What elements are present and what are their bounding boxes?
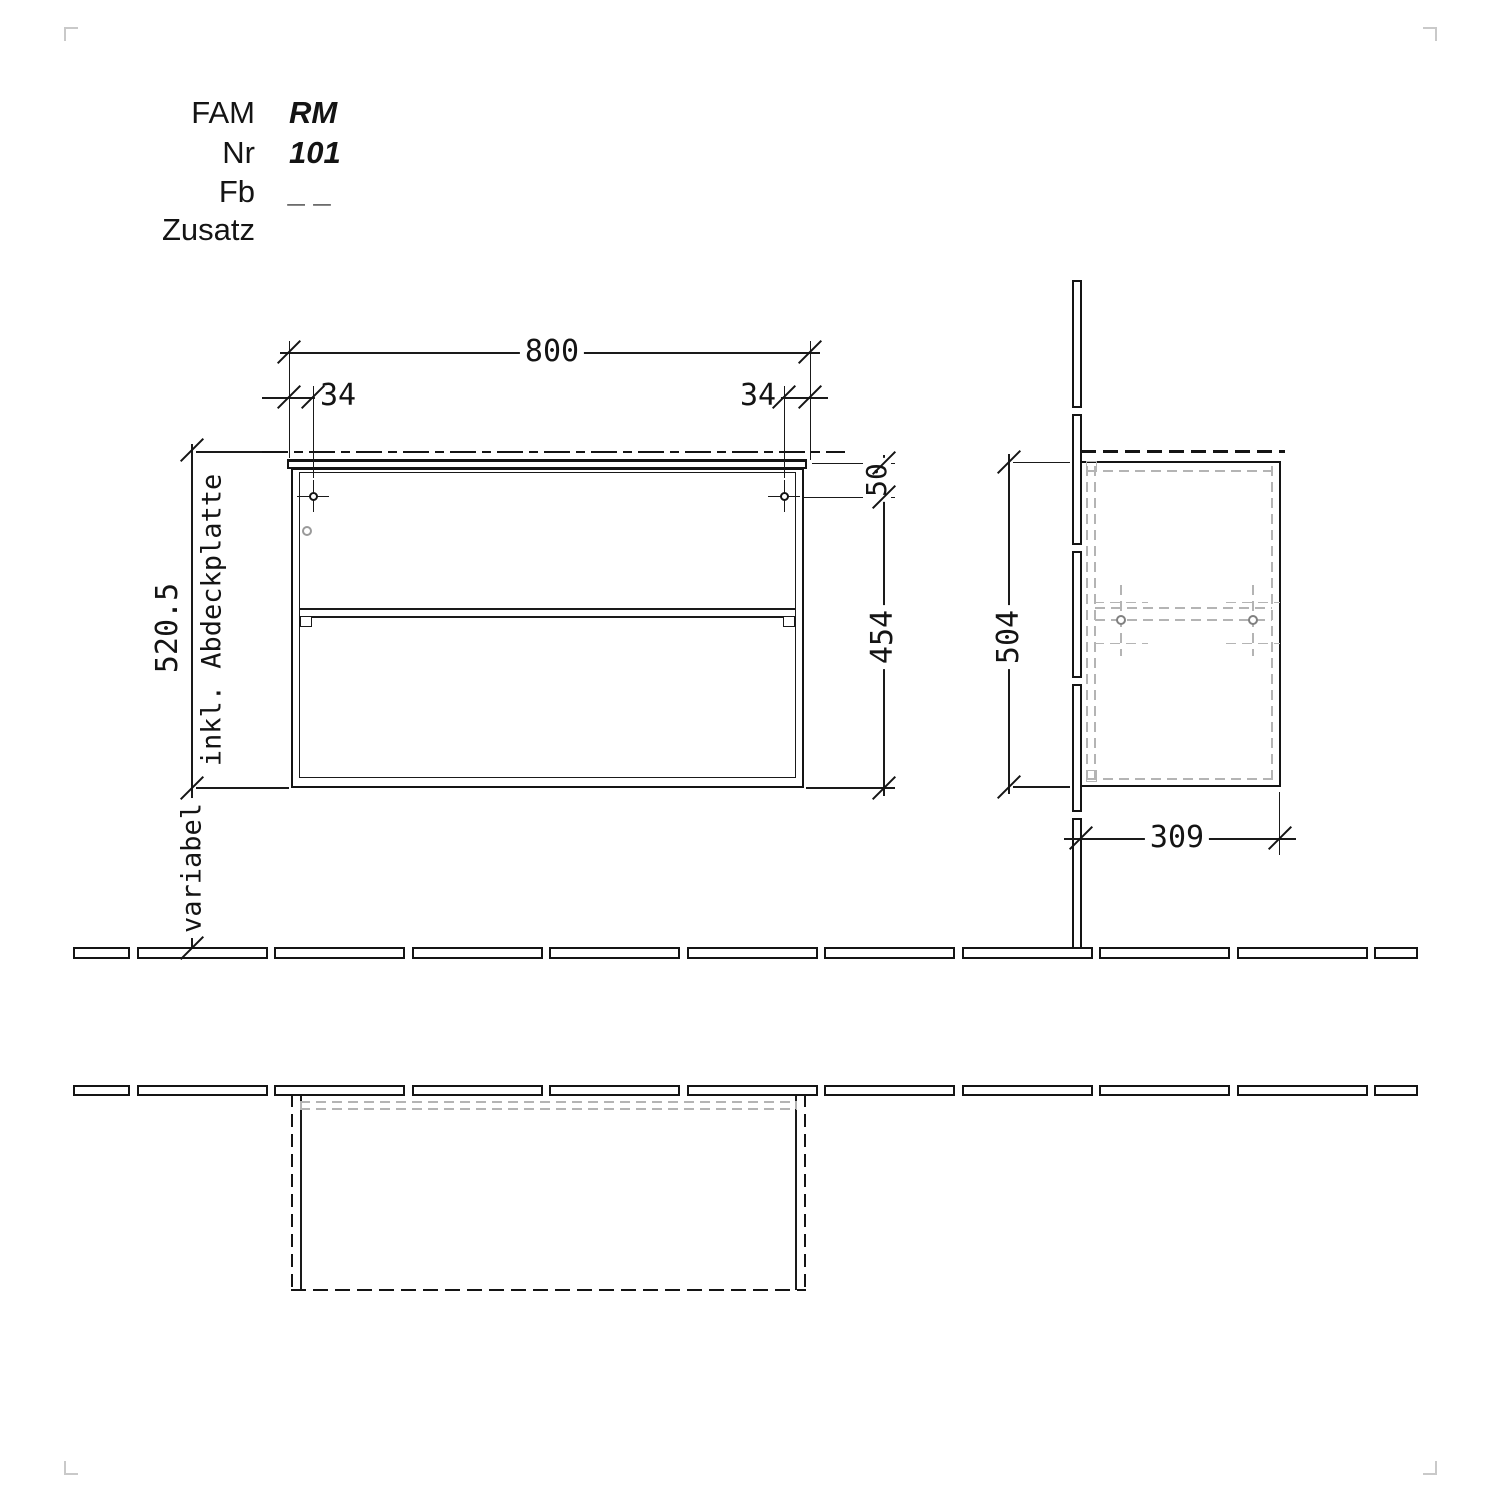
wall-strip-seg-3 [1072,551,1082,678]
wall-line-segment-row2 [1099,1085,1230,1096]
wall-line-segment-row1 [137,947,268,959]
wall-line-segment-row1 [549,947,680,959]
mount-left-cross-bottom [1094,643,1148,645]
top-right-inner-edge [795,1094,797,1290]
title-row-zusatz: Zusatz [130,210,450,250]
front-divider-bracket-left [300,616,312,627]
side-hidden-bottom-line [1087,778,1278,780]
screw-hole-left-icon [309,492,318,501]
title-row-fb: Fb _ _ [130,172,450,212]
dim-34L-ext [313,386,315,478]
dim-504-ext-top [1013,462,1070,464]
dim-label-width: 800 [520,337,584,367]
side-hidden-top-line [1087,470,1278,472]
top-hidden-cover-line-2 [300,1108,797,1110]
dim-label-body-height: 454 [868,605,898,669]
wall-line-segment-row1 [824,947,955,959]
front-divider-line-upper [300,608,795,610]
title-row-nr: Nr 101 [130,133,450,173]
title-label-nr: Nr [130,135,255,171]
wall-line-segment-row1 [1374,947,1418,959]
wall-line-segment-row2 [274,1085,405,1096]
front-wall-line-start [196,451,262,453]
side-hidden-corner-top [1086,461,1097,472]
hidden-hole-left-icon [302,526,312,536]
top-left-outer-edge [291,1094,293,1293]
mount-left-cross-top [1094,602,1148,604]
title-label-fam: FAM [130,95,255,131]
wall-strip-seg-2 [1072,414,1082,545]
crop-mark-bottom-left [64,1461,78,1475]
wall-line-segment-row2 [1374,1085,1418,1096]
dim-800-ext-left [289,341,291,458]
dim-800-ext-right [810,341,812,460]
title-row-fam: FAM RM [130,93,450,133]
crop-mark-bottom-right [1423,1461,1437,1475]
wall-line-segment-row1 [962,947,1093,959]
dim-label-side-height: 504 [994,605,1024,669]
dim-504-ext-bottom [1013,786,1070,788]
wall-line-segment-row2 [412,1085,543,1096]
wall-line-segment-row2 [687,1085,818,1096]
mount-screw-right-icon [1248,615,1258,625]
wall-line-segment-row1 [412,947,543,959]
top-hidden-cover-line-1 [300,1101,797,1103]
top-hidden-cover-cap-left [300,1101,302,1109]
side-hidden-front-line [1271,466,1273,781]
top-front-hidden-edge [291,1289,806,1291]
wall-line-segment-row2 [824,1085,955,1096]
wall-line-segment-row2 [549,1085,680,1096]
wall-line-segment-row2 [73,1085,130,1096]
title-value-fam: RM [289,95,349,131]
front-divider-line-lower [308,616,787,618]
side-top-hidden-edge [1081,450,1285,453]
title-label-fb: Fb [130,174,255,210]
top-hidden-cover-cap-right [795,1101,797,1109]
mount-right-cross-top [1226,602,1280,604]
dim-label-side-depth: 309 [1145,823,1209,853]
wall-strip-seg-1 [1072,280,1082,408]
side-bottom-edge [1081,785,1281,787]
front-wall-centerline [262,451,845,453]
mount-screw-left-icon [1116,615,1126,625]
screw-hole-right-icon [780,492,789,501]
wall-strip-seg-4 [1072,684,1082,812]
front-divider-bracket-right [783,616,795,627]
side-hidden-corner-bottom [1086,770,1097,782]
side-top-edge [1081,461,1281,463]
mount-right-cross-bottom [1226,643,1280,645]
wall-line-segment-row1 [1237,947,1368,959]
side-right-edge [1279,461,1281,787]
dim-520-ext-bottom [196,787,289,789]
top-right-outer-edge [804,1094,806,1293]
dim-label-height-below: variabel [179,798,206,938]
crop-mark-top-left [64,27,78,41]
technical-drawing-canvas: FAM RM Nr 101 Fb _ _ Zusatz [0,0,1499,1500]
dim-34R-ext [784,386,786,478]
front-body-inner-outline [299,472,796,778]
wall-line-segment-row1 [274,947,405,959]
dim-520-line [191,444,193,793]
side-hidden-back-line-2 [1094,466,1096,781]
dim-label-height-note: inkl. Abdeckplatte [199,469,226,772]
dim-309-ext-right [1279,792,1281,855]
title-label-zusatz: Zusatz [130,212,255,248]
wall-line-segment-row2 [962,1085,1093,1096]
wall-line-segment-row2 [1237,1085,1368,1096]
wall-line-segment-row2 [137,1085,268,1096]
top-left-inner-edge [300,1094,302,1290]
wall-line-segment-row1 [73,947,130,959]
crop-mark-top-right [1423,27,1437,41]
side-hidden-back-line-1 [1086,466,1088,781]
dim-label-height-total: 520.5 [153,578,183,678]
title-value-fb: _ _ [289,174,349,210]
title-value-nr: 101 [289,135,349,171]
mount-rail-line-upper [1095,607,1272,609]
wall-line-segment-row1 [687,947,818,959]
wall-line-segment-row1 [1099,947,1230,959]
